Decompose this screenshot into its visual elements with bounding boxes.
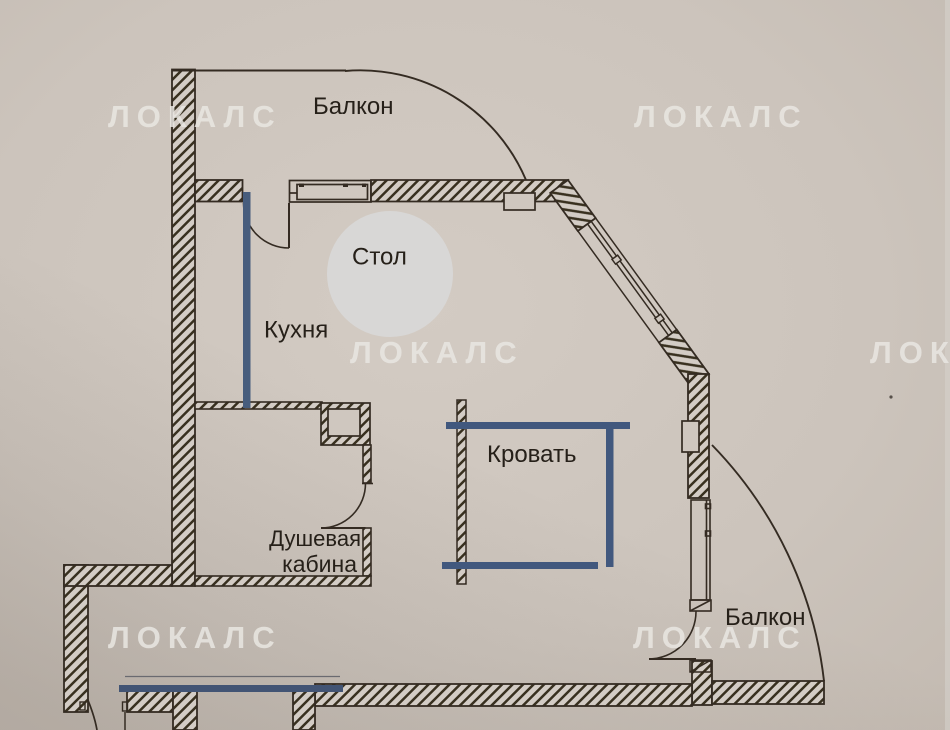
svg-text:Душевая: Душевая [269, 526, 361, 551]
svg-text:ЛОКАЛС: ЛОКАЛС [108, 99, 282, 134]
svg-text:Кухня: Кухня [264, 317, 328, 344]
svg-text:ЛОКАЛС: ЛОКАЛС [108, 620, 282, 655]
svg-text:ЛОКАЛС: ЛОКАЛС [350, 335, 524, 370]
svg-text:ЛОКАЛС: ЛОКАЛС [870, 335, 950, 370]
svg-text:Балкон: Балкон [313, 93, 393, 120]
svg-text:ЛОКАЛС: ЛОКАЛС [633, 620, 807, 655]
svg-text:ЛОКАЛС: ЛОКАЛС [634, 99, 808, 134]
svg-text:Кровать: Кровать [487, 441, 576, 468]
svg-text:Стол: Стол [352, 244, 407, 271]
svg-text:кабина: кабина [282, 551, 357, 577]
